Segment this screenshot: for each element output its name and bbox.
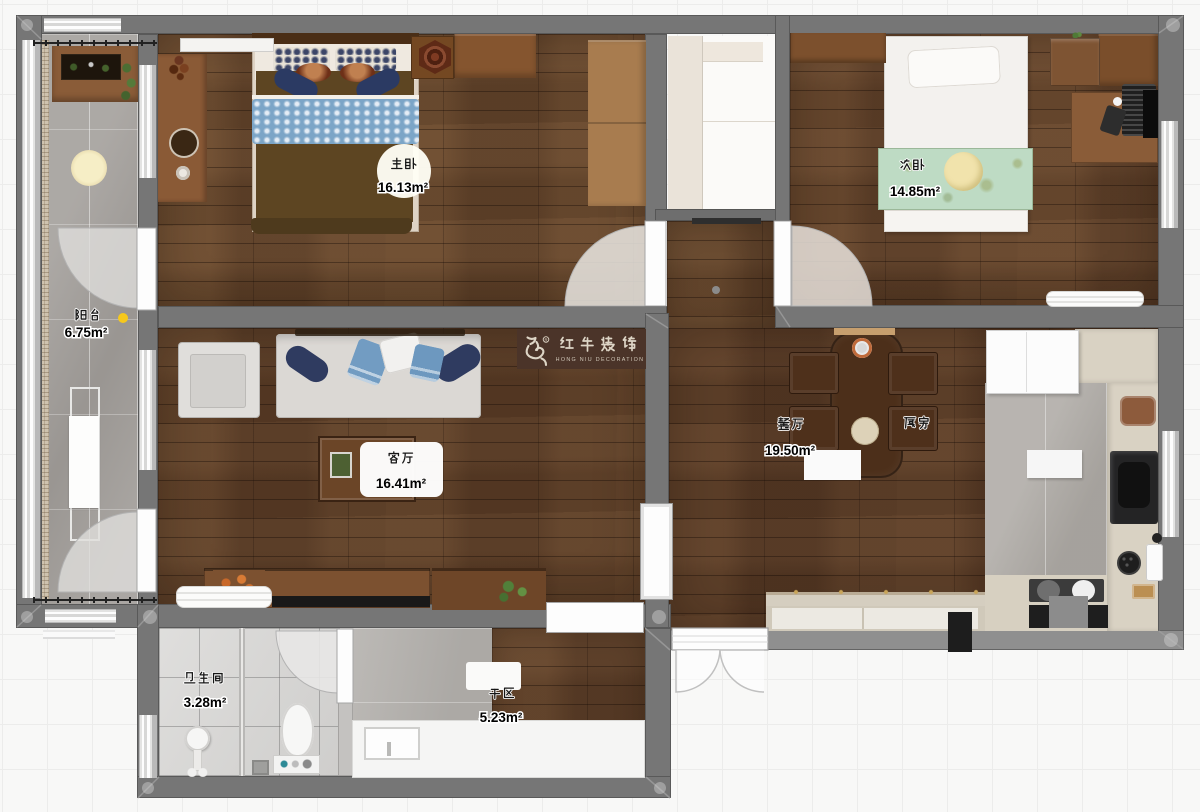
svg-text:6.75m²: 6.75m² (65, 325, 108, 340)
svg-text:14.85m²: 14.85m² (890, 184, 941, 199)
svg-text:R: R (544, 337, 547, 342)
svg-text:16.13m²: 16.13m² (378, 180, 429, 195)
svg-text:5.23m²: 5.23m² (480, 710, 523, 725)
svg-text:16.41m²: 16.41m² (376, 476, 427, 491)
svg-text:19.50m²: 19.50m² (765, 443, 816, 458)
svg-text:3.28m²: 3.28m² (184, 695, 227, 710)
svg-text:HONG NIU DECORATION: HONG NIU DECORATION (556, 357, 645, 363)
